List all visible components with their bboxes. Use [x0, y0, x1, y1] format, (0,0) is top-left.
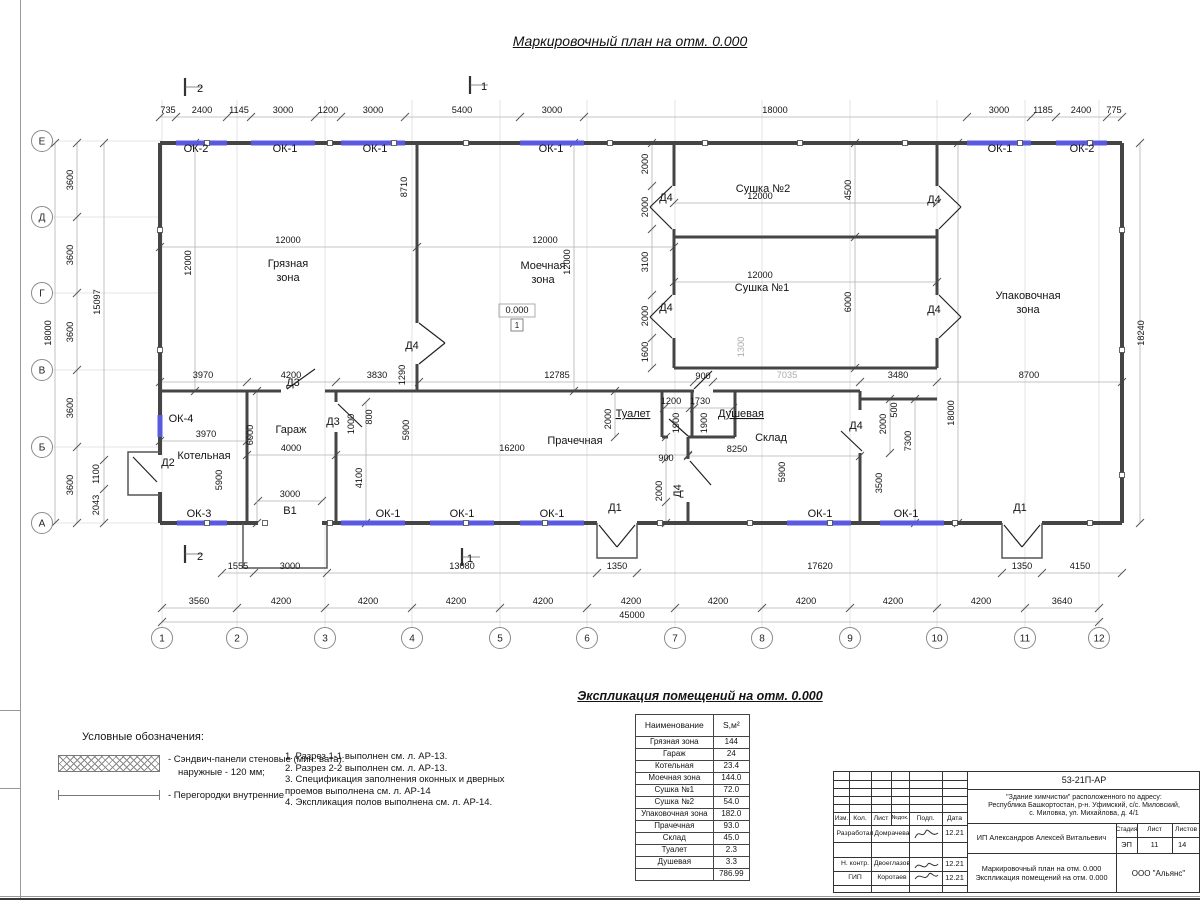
axis-bubble-label: 12	[1093, 634, 1105, 645]
plan-label: ОК-1	[363, 143, 388, 155]
legend-title: Условные обозначения:	[82, 731, 204, 743]
plan-label: 2000	[640, 306, 650, 326]
axis-bubble-label: Д	[39, 213, 46, 224]
plan-label: 6000	[843, 292, 853, 312]
plan-label: 4200	[621, 596, 641, 606]
plan-label: 3600	[65, 398, 75, 418]
plan-label: 1730	[690, 396, 710, 406]
floor-plan: 7352400114530001200300054003000180003000…	[0, 0, 1200, 680]
axis-bubble-label: Е	[39, 137, 46, 148]
plan-label: Д4	[927, 304, 941, 316]
plan-label: 12000	[532, 235, 558, 245]
plan-label: 2043	[91, 495, 101, 515]
plan-label: В1	[283, 505, 296, 517]
plan-label: 12000	[562, 249, 572, 275]
schedule-row: Склад45.0	[636, 833, 750, 845]
plan-label: 1200	[318, 105, 338, 115]
plan-label: 900	[658, 453, 673, 463]
plan-label: Моечная	[520, 260, 565, 272]
col-data: Дата	[942, 812, 967, 825]
plan-label: 3600	[65, 170, 75, 190]
plan-label: 1145	[229, 105, 249, 115]
sheets-header: Листов	[1172, 823, 1200, 837]
stage-value: ЭП	[1116, 837, 1137, 853]
plan-label: 16200	[499, 443, 525, 453]
fold-mark	[0, 788, 20, 789]
plan-label: 4200	[533, 596, 553, 606]
schedule-cell: 2.3	[713, 845, 749, 857]
plan-label: ОК-1	[540, 508, 565, 520]
partition-symbol	[58, 790, 160, 800]
plan-label: 2400	[192, 105, 212, 115]
schedule-cell: 45.0	[713, 833, 749, 845]
axis-bubble-label: 9	[847, 634, 853, 645]
plan-label: зона	[1016, 304, 1040, 316]
role-ncontrol: Н. контр.	[835, 857, 875, 871]
plan-label: 3560	[189, 596, 209, 606]
plan-label: 3970	[193, 370, 213, 380]
schedule-col-area: S,м²	[713, 715, 749, 737]
col-list: Лист	[871, 812, 891, 825]
col-izm: Изм.	[834, 812, 849, 825]
axis-bubble-label: 6	[584, 634, 590, 645]
plan-label: ОК-1	[894, 508, 919, 520]
schedule-cell: 54.0	[713, 797, 749, 809]
plan-label: 3000	[363, 105, 383, 115]
window-strips	[160, 143, 1107, 523]
plan-label: 3480	[888, 370, 908, 380]
schedule-row: 786.99	[636, 869, 750, 881]
plan-label: Сушка №1	[735, 282, 789, 294]
plan-label: 1	[467, 553, 473, 565]
axis-bubble-label: 7	[672, 634, 678, 645]
plan-label: Котельная	[177, 450, 230, 462]
sheet-value: 11	[1137, 837, 1172, 853]
schedule-row: Туалет2.3	[636, 845, 750, 857]
plan-label: 18000	[43, 320, 53, 346]
axis-bubble-label: 8	[759, 634, 765, 645]
plan-label: Д4	[672, 484, 684, 498]
plan-label: 8700	[1019, 370, 1039, 380]
schedule-cell: 182.0	[713, 809, 749, 821]
plan-label: 5400	[452, 105, 472, 115]
schedule-row: Котельная23.4	[636, 761, 750, 773]
role-developer: Разработал	[835, 825, 875, 842]
plan-label: 2000	[654, 481, 664, 501]
axis-bubble-label: 5	[497, 634, 503, 645]
plan-label: 15097	[92, 289, 102, 315]
schedule-cell: Сушка №2	[636, 797, 714, 809]
signature	[912, 826, 940, 842]
axis-bubble-label: В	[39, 366, 46, 377]
schedule-cell: 24	[713, 749, 749, 761]
schedule-cell: Упаковочная зона	[636, 809, 714, 821]
plan-label: 775	[1106, 105, 1121, 115]
schedule-cell: 93.0	[713, 821, 749, 833]
plan-label: 1	[515, 321, 520, 330]
schedule-row: Прачечная93.0	[636, 821, 750, 833]
schedule-cell	[636, 869, 714, 881]
sandwich-panel-symbol	[58, 755, 160, 772]
plan-label: 3970	[196, 429, 216, 439]
schedule-cell: 144.0	[713, 773, 749, 785]
schedule-cell: Душевая	[636, 857, 714, 869]
schedule-cell: Котельная	[636, 761, 714, 773]
fold-mark	[0, 710, 20, 711]
plan-label: 1900	[699, 413, 709, 433]
plan-label: 4200	[358, 596, 378, 606]
schedule-cell: Грязная зона	[636, 737, 714, 749]
schedule-cell: 786.99	[713, 869, 749, 881]
schedule-cell: Сушка №1	[636, 785, 714, 797]
plan-label: ОК-1	[539, 143, 564, 155]
plan-label: Д1	[608, 502, 622, 514]
plan-label: 4000	[281, 443, 301, 453]
schedule-col-name: Наименование	[636, 715, 714, 737]
axis-bubble-label: Г	[39, 289, 45, 300]
plan-label: 1350	[607, 561, 627, 571]
axis-bubble-label: 2	[234, 634, 240, 645]
plan-label: 1100	[91, 464, 101, 484]
plan-label: Д2	[161, 457, 175, 469]
plan-label: 1350	[1012, 561, 1032, 571]
plan-label: ОК-4	[169, 413, 194, 425]
drawing-sheet: { "title": "Маркировочный план на отм. 0…	[0, 0, 1200, 900]
plan-label: 12000	[747, 270, 773, 280]
title-block: 53-21П-АР "Здание химчистки" расположенн…	[833, 771, 1200, 893]
schedule-row: Гараж24	[636, 749, 750, 761]
plan-label: 1600	[640, 342, 650, 362]
plan-label: 4500	[843, 180, 853, 200]
plan-label: 3640	[1052, 596, 1072, 606]
signature	[912, 858, 940, 884]
plan-label: 1290	[397, 365, 407, 385]
plan-label: ОК-2	[184, 143, 209, 155]
notes: 1. Разрез 1-1 выполнен см. л. АР-13.2. Р…	[285, 751, 505, 809]
plan-label: 45000	[619, 610, 645, 620]
axis-grid-lines	[52, 100, 1099, 627]
plan-label: 3830	[367, 370, 387, 380]
plan-label: 7035	[777, 370, 797, 380]
plan-label: 6000	[245, 425, 255, 445]
plan-label: 1000	[346, 414, 356, 434]
axis-bubble-label: А	[39, 519, 46, 530]
col-kol: Кол.	[849, 812, 871, 825]
axis-bubble-label: 10	[931, 634, 943, 645]
plan-label: Д4	[659, 302, 673, 314]
name-gip: Коротаев	[872, 871, 912, 885]
plan-label: 1185	[1033, 105, 1053, 115]
plan-label: 3000	[280, 561, 300, 571]
plan-label: Д4	[659, 192, 673, 204]
legend-item-1b: наружные - 120 мм;	[178, 766, 265, 779]
plan-label: 3000	[280, 489, 300, 499]
plan-label: 1300	[736, 337, 746, 357]
plan-label: 4200	[883, 596, 903, 606]
axis-bubble-label: 3	[322, 634, 328, 645]
plan-label: ОК-1	[808, 508, 833, 520]
plan-label: 4200	[281, 370, 301, 380]
plan-label: 2000	[603, 409, 613, 429]
plan-label: Туалет	[616, 408, 651, 420]
plan-label: 2	[197, 551, 203, 563]
plan-label: Упаковочная	[995, 290, 1060, 302]
plan-label: 4150	[1070, 561, 1090, 571]
plan-label: 3100	[640, 252, 650, 272]
plan-label: 3000	[989, 105, 1009, 115]
plan-label: 5900	[214, 470, 224, 490]
plan-label: 4200	[796, 596, 816, 606]
plan-label: 500	[889, 402, 899, 417]
plan-label: ОК-1	[376, 508, 401, 520]
schedule-cell: 144	[713, 737, 749, 749]
plan-label: 1900	[671, 413, 681, 433]
plan-label: 2000	[878, 414, 888, 434]
plan-label: 8710	[399, 177, 409, 197]
plan-label: 12000	[275, 235, 301, 245]
note-line: 3. Спецификация заполнения оконных и две…	[285, 774, 505, 786]
date-ncontrol: 12.21	[942, 857, 967, 871]
plan-label: Д4	[927, 194, 941, 206]
plan-label: 4200	[971, 596, 991, 606]
plan-label: 17620	[807, 561, 833, 571]
plan-label: 3000	[542, 105, 562, 115]
plan-label: Душевая	[718, 408, 764, 420]
schedule-cell: Моечная зона	[636, 773, 714, 785]
sheet-frame-left	[20, 0, 21, 900]
schedule-table: Наименование S,м² Грязная зона144Гараж24…	[635, 714, 750, 881]
plan-label: 900	[695, 371, 710, 381]
col-ndok: №док.	[891, 812, 909, 825]
plan-label: 3600	[65, 245, 75, 265]
plan-label: 12785	[544, 370, 570, 380]
plan-label: 2000	[640, 154, 650, 174]
plan-label: зона	[276, 272, 300, 284]
plan-label: ОК-1	[450, 508, 475, 520]
sheet-header: Лист	[1137, 823, 1172, 837]
plan-labels: 7352400114530001200300054003000180003000…	[43, 81, 1146, 620]
plan-label: 18000	[946, 400, 956, 426]
schedule-cell: Прачечная	[636, 821, 714, 833]
client-name: ИП Александров Алексей Витальевич	[967, 823, 1116, 853]
plan-label: 5900	[401, 420, 411, 440]
plan-label: 5900	[777, 462, 787, 482]
project-code: 53-21П-АР	[967, 772, 1200, 789]
plan-label: 2400	[1071, 105, 1091, 115]
axis-bubble-label: 1	[159, 634, 165, 645]
section-mark-lines	[185, 76, 470, 566]
schedule-row: Грязная зона144	[636, 737, 750, 749]
doc-title: Маркировочный план на отм. 0.000Эксплика…	[967, 853, 1116, 893]
plan-label: 1555	[228, 561, 248, 571]
plan-label: 4200	[708, 596, 728, 606]
axis-bubble-label: Б	[39, 443, 46, 454]
role-gip: ГИП	[835, 871, 875, 885]
plan-label: Д1	[1013, 502, 1027, 514]
plan-label: 18240	[1136, 320, 1146, 346]
plan-label: 4100	[354, 468, 364, 488]
note-line: 1. Разрез 1-1 выполнен см. л. АР-13.	[285, 751, 505, 763]
plan-label: ОК-1	[273, 143, 298, 155]
organization: ООО "Альянс"	[1116, 853, 1200, 893]
schedule-row: Упаковочная зона182.0	[636, 809, 750, 821]
note-line: 2. Разрез 2-2 выполнен см. л. АР-13.	[285, 763, 505, 775]
plan-label: 7300	[903, 431, 913, 451]
project-address: "Здание химчистки" расположенного по адр…	[969, 790, 1199, 822]
schedule-cell: Склад	[636, 833, 714, 845]
plan-label: 3600	[65, 475, 75, 495]
plan-label: 800	[364, 409, 374, 424]
name-developer: Домрачева	[872, 825, 912, 842]
stage-header: Стадия	[1116, 823, 1137, 837]
plan-label: 8250	[727, 444, 747, 454]
plan-label: 2	[197, 83, 203, 95]
schedule-row: Сушка №254.0	[636, 797, 750, 809]
plan-label: 0.000	[506, 305, 529, 315]
schedule-cell: 72.0	[713, 785, 749, 797]
axis-bubble-label: 4	[409, 634, 415, 645]
plan-label: Д3	[326, 416, 340, 428]
plan-label: Прачечная	[547, 435, 602, 447]
plan-label: 3500	[874, 473, 884, 493]
sheet-frame-bottom	[0, 896, 1200, 897]
plan-label: 12000	[747, 191, 773, 201]
plan-label: 18000	[762, 105, 788, 115]
date-developer: 12.21	[942, 825, 967, 842]
schedule-cell: Туалет	[636, 845, 714, 857]
note-line: проемов выполнена см. л. АР-14	[285, 786, 505, 798]
schedule-row: Моечная зона144.0	[636, 773, 750, 785]
axis-bubble-label: 11	[1020, 634, 1031, 645]
plan-label: зона	[531, 274, 555, 286]
plan-label: ОК-3	[187, 508, 212, 520]
plan-label: 4200	[446, 596, 466, 606]
plan-label: Д4	[849, 420, 863, 432]
plan-label: 1200	[661, 396, 681, 406]
plan-label: 3600	[65, 322, 75, 342]
plan-label: ОК-1	[988, 143, 1013, 155]
plan-label: 735	[160, 105, 175, 115]
schedule-title: Экспликация помещений на отм. 0.000	[560, 689, 840, 703]
sheets-value: 14	[1172, 837, 1200, 853]
inner-walls	[160, 143, 937, 523]
plan-label: 3000	[273, 105, 293, 115]
col-podp: Подп.	[909, 812, 942, 825]
note-line: 4. Экспликация полов выполнена см. л. АР…	[285, 797, 505, 809]
plan-label: Грязная	[268, 258, 309, 270]
schedule-cell: 23.4	[713, 761, 749, 773]
plan-label: ОК-2	[1070, 143, 1095, 155]
schedule-row: Душевая3.3	[636, 857, 750, 869]
legend-item-2: - Перегородки внутренние	[168, 789, 284, 802]
schedule-cell: Гараж	[636, 749, 714, 761]
name-ncontrol: Двоеглазов	[872, 857, 912, 871]
plan-label: 12000	[183, 250, 193, 276]
schedule-row: Сушка №172.0	[636, 785, 750, 797]
plan-label: 2000	[640, 197, 650, 217]
plan-label: 4200	[271, 596, 291, 606]
date-gip: 12.21	[942, 871, 967, 885]
plan-label: 1	[481, 81, 487, 93]
plan-label: Гараж	[275, 424, 307, 436]
plan-label: Д4	[405, 340, 419, 352]
schedule-cell: 3.3	[713, 857, 749, 869]
plan-label: Склад	[755, 432, 787, 444]
